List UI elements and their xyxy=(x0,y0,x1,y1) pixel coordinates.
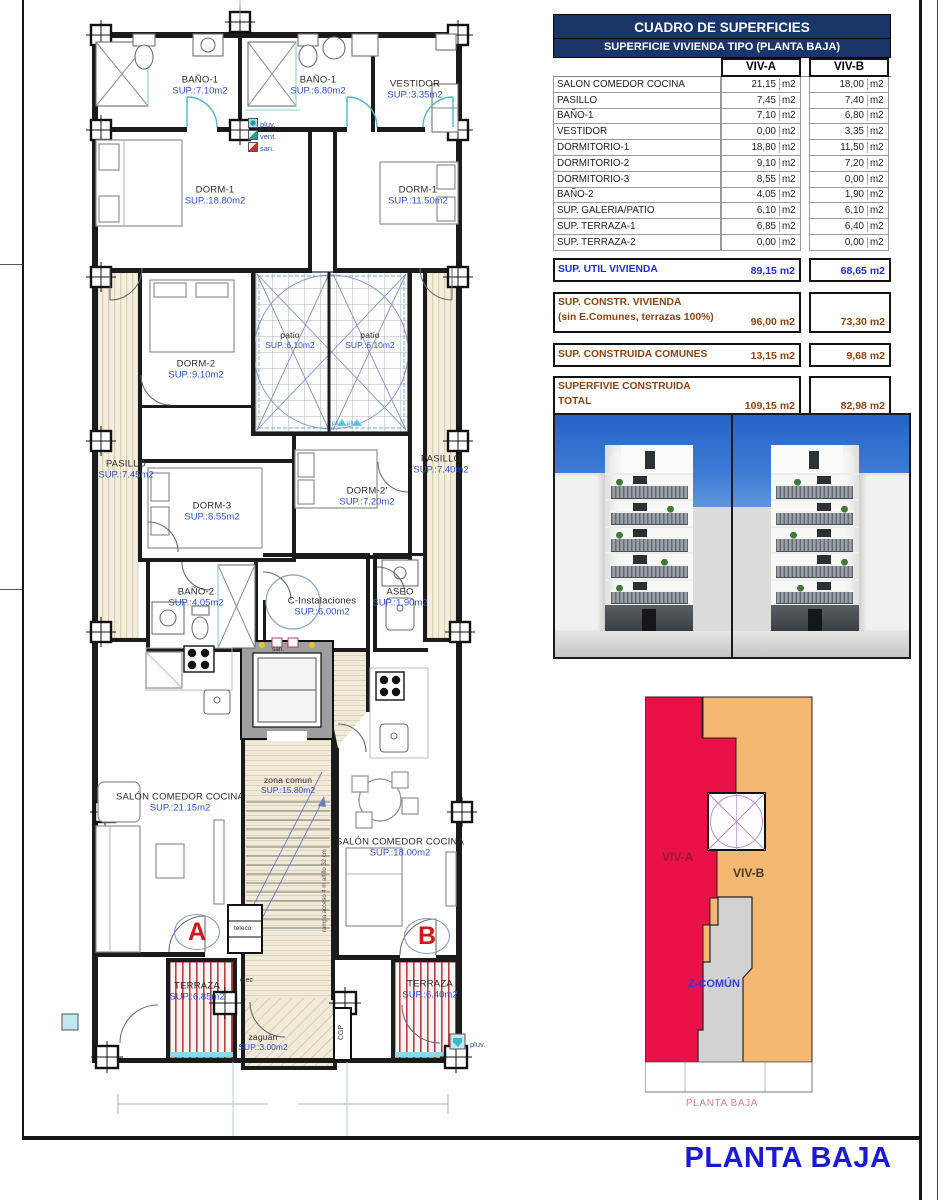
summary-row-comunes: SUP. CONSTRUIDA COMUNES 13,15 m2 9,68 m2 xyxy=(553,343,891,367)
table-title: CUADRO DE SUPERFICIES xyxy=(553,14,891,39)
table-row: BAÑO-24,05m21,90m2 xyxy=(553,188,891,204)
room-label-terraza-a: TERRAZASUP.:6.85m2 xyxy=(169,981,224,1004)
room-label-patio1: patioSUP.:6.10m2 xyxy=(265,330,314,350)
room-label-zaguan: zaguánSUP.:3.00m2 xyxy=(238,1032,287,1052)
table-row: BAÑO-17,10m26,80m2 xyxy=(553,109,891,125)
zoning-key-diagram xyxy=(645,695,815,1097)
plan-sheet: BAÑO-1SUP.:7.10m2 BAÑO-1SUP.:6.80m2 VEST… xyxy=(0,0,942,1200)
room-label-zona-comun: zona comunSUP.:15.80m2 xyxy=(261,775,315,795)
utilities-legend: pluv. vent. san. xyxy=(248,118,276,154)
vent-icon xyxy=(248,130,258,140)
table-column-headers: VIV-A VIV-B xyxy=(553,58,891,76)
col-header-viv-b: VIV-B xyxy=(809,58,889,77)
table-row: DORMITORIO-38,55m20,00m2 xyxy=(553,172,891,188)
col-header-viv-a: VIV-A xyxy=(721,58,801,77)
building-render-photo-left xyxy=(555,415,731,657)
table-body: SALON COMEDOR COCINA21,15m218,00m2 PASIL… xyxy=(553,76,891,251)
room-label-bano1a: BAÑO-1SUP.:7.10m2 xyxy=(172,75,227,98)
san-icon xyxy=(248,142,258,152)
room-label-bano2: BAÑO-2SUP.:4.05m2 xyxy=(168,587,223,610)
room-label-dorm3: DORM-3SUP.:8.55m2 xyxy=(184,501,239,524)
room-label-dorm1b: DORM-1SUP.:11.50m2 xyxy=(388,185,448,208)
san-label: san. xyxy=(272,646,284,653)
table-row: PASILLO7,45m27,40m2 xyxy=(553,93,891,109)
surfaces-table: CUADRO DE SUPERFICIES SUPERFICIE VIVIEND… xyxy=(553,14,891,417)
frame-right-line xyxy=(919,0,922,1200)
summary-row-total: SUPERFIVIE CONSTRUIDATOTAL 109,15 m2 82,… xyxy=(553,376,891,417)
viv-a-label: VIV-A xyxy=(662,850,693,864)
table-row: VESTIDOR0,00m23,35m2 xyxy=(553,124,891,140)
room-label-pasillo-a: PASILLOSUP.:7.45m2 xyxy=(98,459,153,482)
frame-right-thin-line xyxy=(937,0,938,1200)
pluv-bottom-label: pluv. xyxy=(470,1040,485,1049)
room-label-bano1b: BAÑO-1SUP.:6.80m2 xyxy=(290,75,345,98)
table-row: DORMITORIO-118,80m211,50m2 xyxy=(553,140,891,156)
room-label-salon-b: SALÓN COMEDOR COCINASUP.:18.00m2 xyxy=(336,837,464,860)
pluv-icon xyxy=(248,118,258,128)
summary-row-constr: SUP. CONSTR. VIVIENDA(sin E.Comunes, ter… xyxy=(553,292,891,333)
patio-pluv-label: pluv. pluv. xyxy=(332,420,360,427)
z-comun-label: Z-COMÚN xyxy=(688,978,740,990)
sheet-title: PLANTA BAJA xyxy=(648,1142,928,1175)
patio-grid xyxy=(254,272,408,432)
street-strip xyxy=(645,1062,812,1092)
ramp-note: rampa acceso 4 m altillo 32 cm xyxy=(322,849,328,932)
diagram-caption: PLANTA BAJA xyxy=(686,1098,758,1109)
room-label-salon-a: SALÓN COMEDOR COCINASUP.:21.15m2 xyxy=(116,792,244,815)
viv-b-label: VIV-B xyxy=(733,866,764,880)
building-render-photo-right xyxy=(731,415,909,657)
table-row: DORMITORIO-29,10m27,20m2 xyxy=(553,156,891,172)
cgp-label: CGP xyxy=(338,1025,345,1040)
teleco-label: teleco xyxy=(234,925,251,932)
table-row: SALON COMEDOR COCINA21,15m218,00m2 xyxy=(553,77,891,93)
apartment-b-letter: B xyxy=(404,918,450,954)
table-subtitle: SUPERFICIE VIVIENDA TIPO (PLANTA BAJA) xyxy=(553,39,891,58)
elec-label: elec xyxy=(240,977,253,984)
table-row: SUP. TERRAZA-16,85m26,40m2 xyxy=(553,219,891,235)
table-row: SUP. TERRAZA-20,00m20,00m2 xyxy=(553,235,891,251)
room-label-pasillo-b: PASILLOSUP.:7.40m2 xyxy=(413,454,468,477)
apartment-a-letter: A xyxy=(174,914,220,950)
room-label-patio2: patioSUP.:6.10m2 xyxy=(345,330,394,350)
elevator-shaft xyxy=(241,638,333,741)
room-label-dorm1a: DORM-1SUP.:18.80m2 xyxy=(185,185,246,208)
room-label-dorm2: DORM-2SUP.:9.10m2 xyxy=(168,359,223,382)
room-label-dorm2b: DORM-2'SUP.:7.20m2 xyxy=(339,486,394,509)
room-label-terraza-b: TERRAZASUP.:6.40m2 xyxy=(402,979,457,1002)
room-label-cinst: C-InstalacionesSUP.:6.00m2 xyxy=(288,596,356,619)
building-renders-frame xyxy=(553,413,911,659)
table-row: SUP. GALERIA/PATIO6,10m26,10m2 xyxy=(553,203,891,219)
summary-row-util: SUP. UTIL VIVIENDA 89,15 m2 68,65 m2 xyxy=(553,258,891,282)
floor-plan-drawing xyxy=(0,0,545,1145)
room-label-vestidor: VESTIDORSUP.:3.35m2 xyxy=(387,79,442,102)
room-label-aseo: ASEOSUP.:1.90m2 xyxy=(372,587,427,610)
